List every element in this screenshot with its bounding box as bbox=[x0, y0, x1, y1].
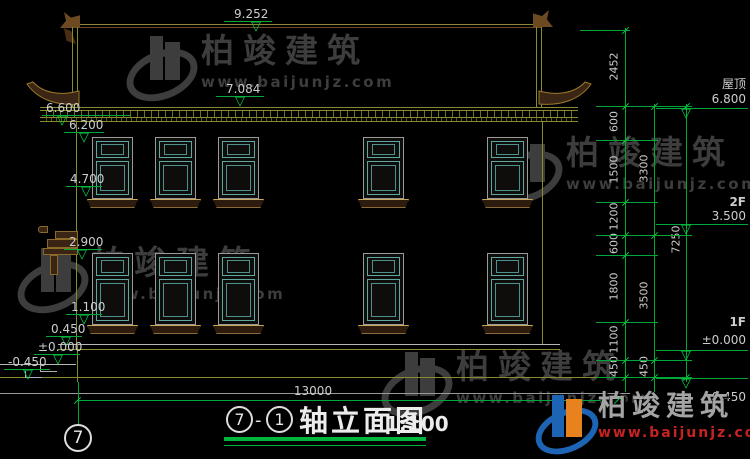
site-logo-url: www.baijunjz.com bbox=[598, 425, 750, 441]
ridge-ornament-left bbox=[60, 12, 80, 28]
dim-13000: 13000 bbox=[283, 385, 343, 397]
dim-extension-line bbox=[658, 106, 692, 107]
level-ground-marker-icon: ▽ bbox=[20, 369, 36, 380]
level-f2-sill-marker-icon: ▽ bbox=[78, 186, 94, 197]
title-bubble-start-label: 7 bbox=[234, 410, 244, 429]
title-bubble-end: 1 bbox=[266, 406, 293, 433]
level-basement-line bbox=[656, 378, 748, 379]
dim-600-b: 600 bbox=[609, 222, 620, 266]
dim-extension-line bbox=[596, 322, 658, 323]
watermark-logo-icon bbox=[388, 350, 442, 410]
title-underline-thin bbox=[224, 445, 426, 446]
dim-1800: 1800 bbox=[609, 265, 620, 309]
level-basement-marker-icon: ▽ bbox=[678, 378, 694, 389]
level-roof-marker-icon: ▽ bbox=[678, 108, 694, 119]
title-bubble-start: 7 bbox=[226, 406, 253, 433]
window-2f-3 bbox=[218, 137, 259, 208]
dim-extension-line bbox=[596, 202, 658, 203]
ridge-line-top bbox=[77, 24, 541, 25]
level-eave-marker-icon: ▽ bbox=[54, 115, 70, 126]
watermark-logo-icon bbox=[133, 34, 187, 94]
title-underline-thick bbox=[224, 437, 426, 441]
level-1f-label: 1F bbox=[702, 316, 746, 328]
level-1f-value: ±0.000 bbox=[700, 334, 746, 346]
watermark-brand: 柏竣建筑 bbox=[566, 136, 750, 169]
watermark-right: 柏竣建筑 www.baijunjz.com bbox=[498, 136, 750, 196]
level-wall-top-marker-icon: ▽ bbox=[76, 132, 92, 143]
drawing-scale: 1:100 bbox=[385, 414, 449, 434]
porch-bracket-post bbox=[50, 255, 58, 275]
porch-bracket-curl bbox=[38, 226, 48, 233]
ground-line bbox=[0, 377, 632, 378]
window-2f-2 bbox=[155, 137, 196, 208]
dim-extension-line bbox=[596, 377, 658, 378]
dim-1500: 1500 bbox=[609, 148, 620, 192]
window-1f-5 bbox=[487, 253, 528, 334]
watermark-body: 柏竣建筑 www.baijunjz.com bbox=[566, 136, 750, 193]
site-logo-icon bbox=[540, 392, 588, 448]
dim-extension-line bbox=[658, 235, 692, 236]
dim-chain-line-middle bbox=[654, 104, 655, 392]
dim-extension-line bbox=[658, 377, 692, 378]
window-1f-1 bbox=[92, 253, 133, 334]
roof-edge-left-inner bbox=[77, 27, 78, 107]
dim-extension-line bbox=[596, 140, 658, 141]
window-1f-4 bbox=[363, 253, 404, 334]
axis-bubble: 7 bbox=[64, 424, 92, 452]
level-roof-value: 6.800 bbox=[702, 93, 746, 105]
elevation-drawing-canvas: 柏竣建筑 www.baijunjz.com 柏竣建筑 www.baijunjz.… bbox=[0, 0, 750, 459]
dim-450-a: 450 bbox=[609, 345, 620, 389]
plinth-top-line bbox=[58, 344, 560, 345]
watermark-site: www.baijunjz.com bbox=[566, 175, 750, 193]
eave-line-lower-1 bbox=[40, 117, 578, 118]
site-logo-body: 柏竣建筑 www.baijunjz.com bbox=[598, 392, 750, 441]
window-2f-5 bbox=[487, 137, 528, 208]
level-roof-label: 屋顶 bbox=[702, 78, 746, 90]
ridge-hook-left bbox=[64, 28, 76, 44]
ridge-line-bottom bbox=[77, 27, 541, 28]
dim-extension-line bbox=[596, 235, 658, 236]
ridge-ornament-right bbox=[533, 10, 553, 27]
site-logo-brand: 柏竣建筑 bbox=[598, 392, 750, 420]
roof-edge-right-outer bbox=[541, 27, 542, 107]
level-ridge-marker-icon: ▽ bbox=[248, 21, 264, 32]
level-2f-line bbox=[656, 224, 748, 225]
level-upper-eave-marker-icon: ▽ bbox=[232, 96, 248, 107]
eave-line-lower-2 bbox=[40, 121, 578, 122]
level-1f-line bbox=[656, 350, 748, 351]
dim-chain-line-inner bbox=[625, 28, 626, 392]
dim-extension-line bbox=[596, 106, 658, 107]
watermark-top: 柏竣建筑 www.baijunjz.com bbox=[133, 34, 394, 94]
level-f1-window-top-marker-icon: ▽ bbox=[74, 249, 90, 260]
plinth-line bbox=[58, 349, 560, 350]
level-2f-value: 3.500 bbox=[702, 210, 746, 222]
site-logo: 柏竣建筑 www.baijunjz.com bbox=[540, 392, 750, 448]
title-bubble-end-label: 1 bbox=[274, 410, 284, 429]
dim-extension-line bbox=[580, 30, 630, 31]
eave-line-upper-1 bbox=[40, 107, 578, 108]
dim-2452: 2452 bbox=[609, 45, 620, 89]
dim-extension-line bbox=[596, 255, 658, 256]
watermark-brand: 柏竣建筑 bbox=[201, 34, 394, 67]
axis-bubble-label: 7 bbox=[73, 428, 84, 448]
title-separator: - bbox=[255, 412, 262, 430]
level-roof-line bbox=[656, 108, 748, 109]
roof-edge-right-inner bbox=[536, 27, 537, 107]
dim-extension-line bbox=[658, 360, 692, 361]
roof-edge-left-outer bbox=[72, 27, 73, 107]
window-2f-4 bbox=[363, 137, 404, 208]
dim-width-line bbox=[77, 400, 617, 401]
dim-extension-line bbox=[596, 360, 658, 361]
level-2f-marker-icon: ▽ bbox=[678, 224, 694, 235]
level-floor-zero-marker-icon: ▽ bbox=[50, 354, 66, 365]
wall-edge-right bbox=[542, 121, 543, 344]
window-1f-2 bbox=[155, 253, 196, 334]
dim-3500: 3500 bbox=[639, 274, 650, 318]
dim-450-b: 450 bbox=[639, 345, 650, 389]
dim-3300: 3300 bbox=[639, 147, 650, 191]
dim-chain-line-outer bbox=[686, 104, 687, 382]
axis-extension-line bbox=[78, 382, 79, 424]
level-2f-label: 2F bbox=[702, 196, 746, 208]
window-1f-3 bbox=[218, 253, 259, 334]
